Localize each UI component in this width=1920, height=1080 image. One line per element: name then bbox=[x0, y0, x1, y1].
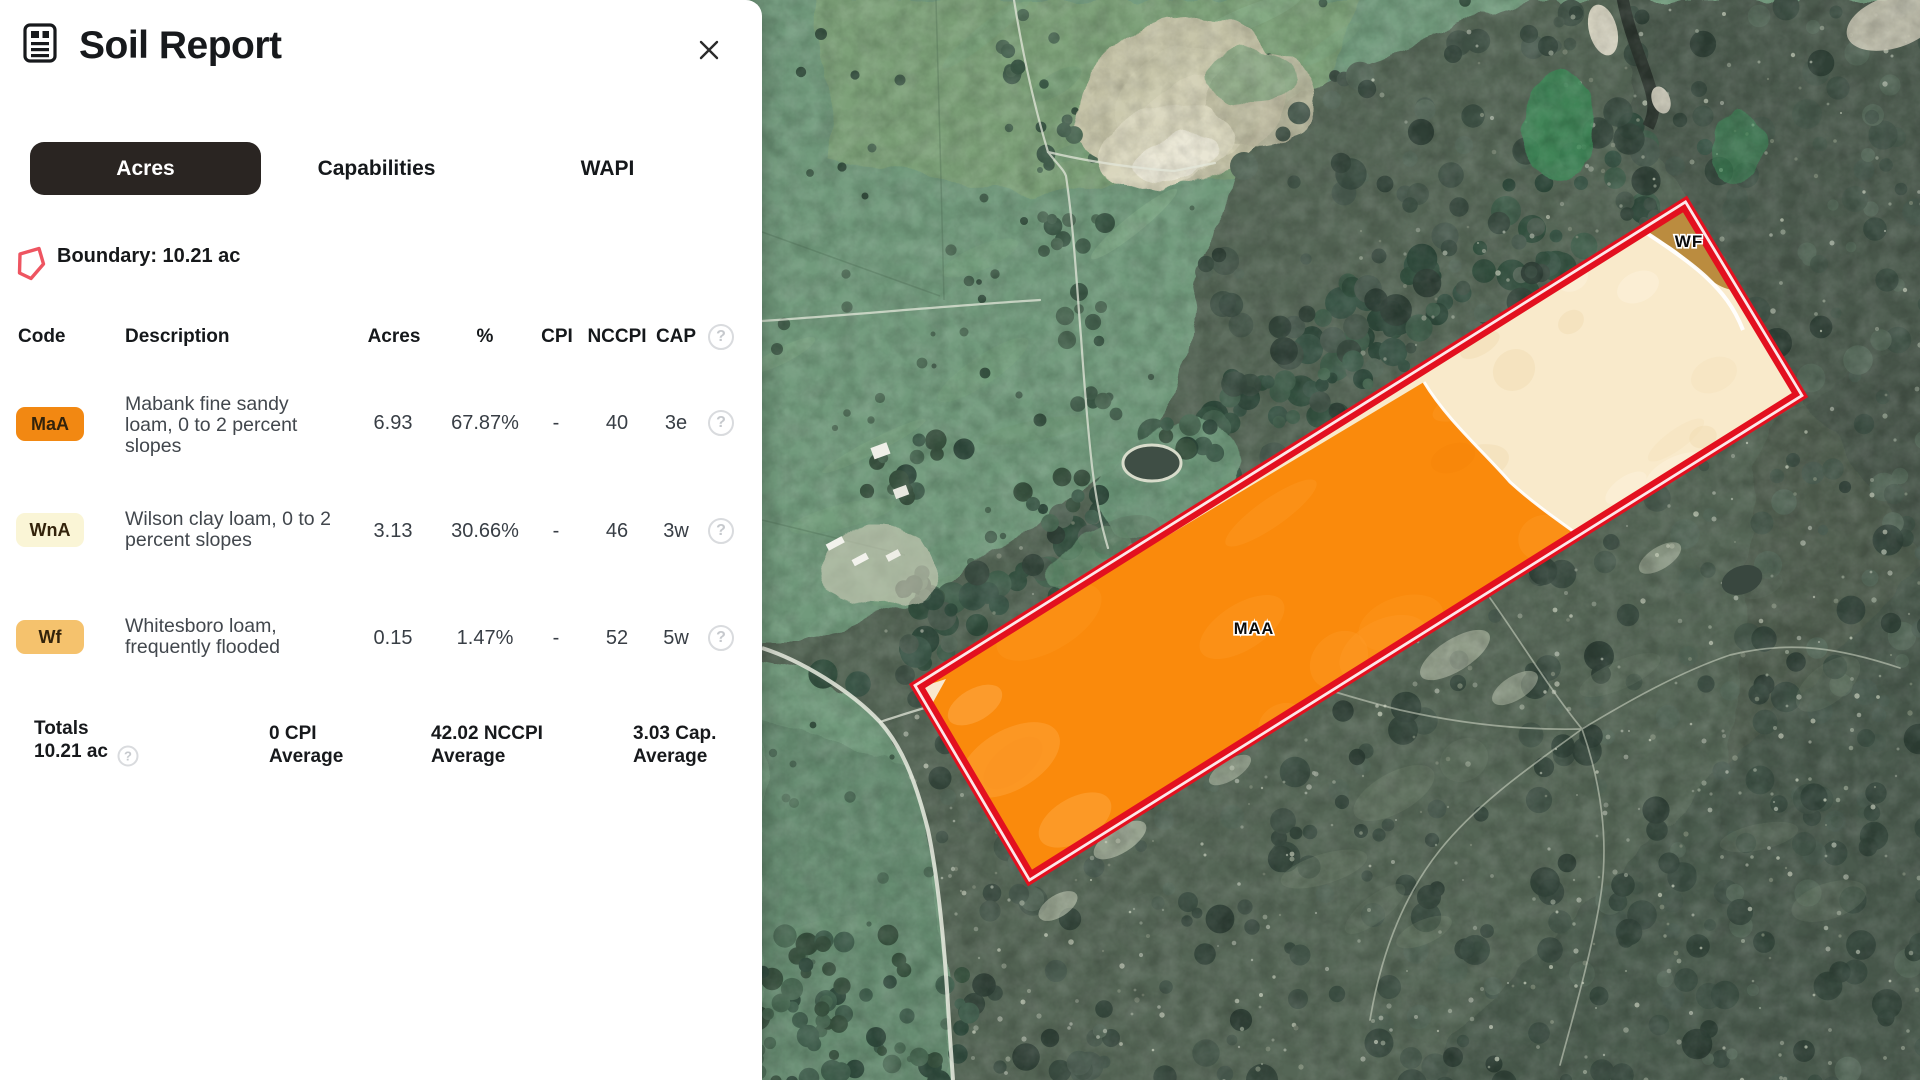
svg-text:MAA: MAA bbox=[1234, 620, 1275, 638]
svg-text:WF: WF bbox=[1675, 232, 1703, 251]
